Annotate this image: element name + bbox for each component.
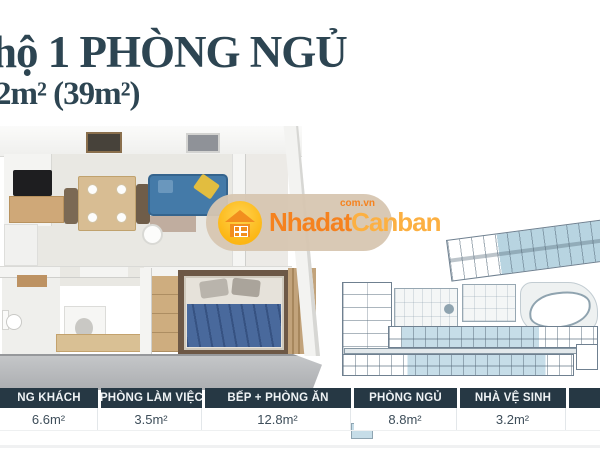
wall-picture-frame [86,132,122,153]
interior-wall [140,268,152,354]
plate [87,184,98,195]
bathroom-door [17,275,47,287]
top-wall [0,126,302,157]
table-value-cell: 3.2m² [460,408,566,430]
dining-chair [64,188,78,224]
bed-blanket [187,304,281,347]
wall-picture-frame [186,133,220,153]
end-unit-block [576,344,598,370]
doorway [60,267,80,277]
watermark-logo: NhadatCanban com.vn [206,194,392,251]
table-header-cell: PHÒNG NGỦ [354,388,457,408]
amenity-area [462,284,516,322]
table-header-cell: NG KHÁCH [0,388,98,408]
dining-table [78,176,136,231]
table-header-cell: PHÒNG LÀM VIỆC [101,388,202,408]
table-header-cell: NHÀ VỆ SINH [460,388,566,408]
floor-slab [0,354,322,390]
bed-pillow [231,278,261,298]
plate [116,212,127,223]
house-window-icon [234,226,248,237]
watermark-text-primary: Nhadat [269,207,351,237]
swimming-pool [528,289,593,330]
unit-bar-upper [388,326,598,348]
fridge [4,224,38,266]
table-header-cell: BẾP + PHÒNG ĂN [205,388,351,408]
amenity-feature [444,304,454,314]
house-logo-icon [218,201,262,245]
table-value-cell: 12.8m² [205,408,351,430]
watermark-domain: com.vn [340,198,375,209]
coffee-table [142,224,163,245]
house-body-icon [230,224,250,237]
plate [87,212,98,223]
watermark-text-secondary: Canban [351,207,440,237]
table-header-label: NHÀ VỆ SINH [475,392,551,404]
sideboard [56,334,150,352]
unit-bar-lower [342,354,574,376]
watermark-text: NhadatCanban [269,207,440,238]
plate [116,184,127,195]
bottom-edge-shadow [0,445,600,448]
table-header-label: PHÒNG LÀM VIỆC [101,392,202,404]
kitchen-stove [13,170,52,196]
table-header-label: PHÒNG NGỦ [369,392,442,404]
table-value-cell: 6.6m² [0,408,98,430]
table-value-row: 6.6m² 3.5m² 12.8m² 8.8m² 3.2m² [0,408,600,431]
table-value-cell: 3.5m² [101,408,202,430]
table-header-cell [569,388,600,408]
table-value-cell [569,408,600,430]
page-subtitle: 2m² (39m²) [0,76,140,113]
page-title: hộ 1 PHÒNG NGỦ [0,28,347,78]
room-area-table: NG KHÁCH PHÒNG LÀM VIỆC BẾP + PHÒNG ĂN P… [0,388,600,431]
tower-wing-angled [446,219,600,281]
apartment-3d-floorplan [0,118,335,393]
page: hộ 1 PHÒNG NGỦ 2m² (39m²) [0,0,600,450]
table-value-cell: 8.8m² [354,408,457,430]
kitchen-cabinet [9,196,64,223]
table-header-row: NG KHÁCH PHÒNG LÀM VIỆC BẾP + PHÒNG ĂN P… [0,388,600,408]
house-roof-icon [225,210,255,222]
blue-pillow [158,180,173,193]
table-header-label: BẾP + PHÒNG ĂN [227,392,328,404]
table-header-label: NG KHÁCH [17,392,81,404]
wardrobe [152,276,178,352]
toilet [6,314,22,330]
